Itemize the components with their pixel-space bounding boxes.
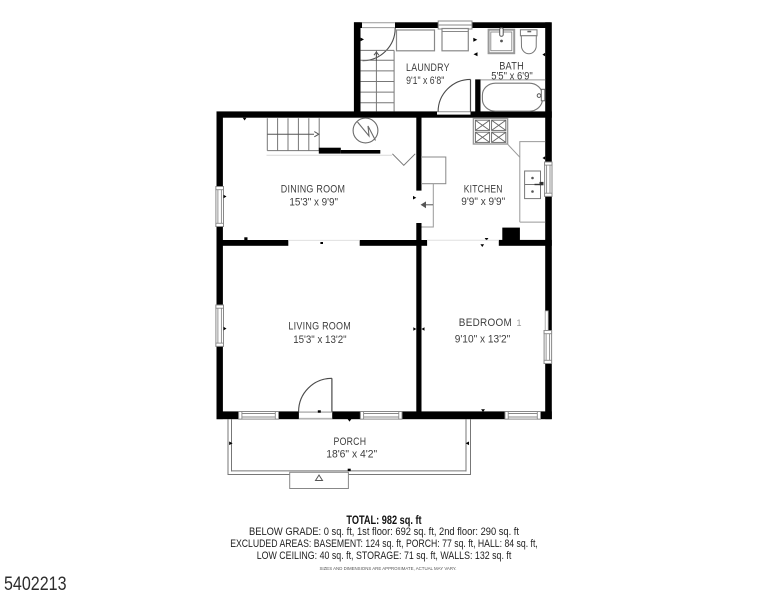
svg-text:SIZES AND DIMENSIONS ARE APPRO: SIZES AND DIMENSIONS ARE APPROXIMATE, AC… <box>320 566 457 572</box>
svg-text:15'3" x 13'2": 15'3" x 13'2" <box>293 334 346 346</box>
svg-text:LOW CEILING: 40 sq. ft, STORAG: LOW CEILING: 40 sq. ft, STORAGE: 71 sq. … <box>257 550 512 562</box>
svg-text:9'9" x 9'9": 9'9" x 9'9" <box>461 196 505 208</box>
svg-text:KITCHEN: KITCHEN <box>464 184 503 196</box>
svg-text:PORCH: PORCH <box>334 436 367 448</box>
svg-text:EXCLUDED AREAS: BASEMENT: 124: EXCLUDED AREAS: BASEMENT: 124 sq. ft, PO… <box>230 538 538 550</box>
svg-text:BEDROOM: BEDROOM <box>459 317 512 329</box>
svg-text:DINING ROOM: DINING ROOM <box>281 184 345 196</box>
svg-text:9'1" x 6'8": 9'1" x 6'8" <box>406 75 444 87</box>
svg-text:18'6" x 4'2": 18'6" x 4'2" <box>326 449 377 461</box>
svg-text:BELOW GRADE: 0 sq. ft, 1st flo: BELOW GRADE: 0 sq. ft, 1st floor: 692 sq… <box>249 526 519 538</box>
svg-text:LAUNDRY: LAUNDRY <box>406 62 450 74</box>
svg-text:1: 1 <box>517 318 522 328</box>
svg-text:5402213: 5402213 <box>4 574 67 594</box>
svg-text:9'10" x 13'2": 9'10" x 13'2" <box>455 334 511 346</box>
svg-text:15'3" x 9'9": 15'3" x 9'9" <box>289 197 338 209</box>
svg-text:LIVING ROOM: LIVING ROOM <box>288 321 351 333</box>
svg-text:5'5" x 6'9": 5'5" x 6'9" <box>491 71 533 83</box>
